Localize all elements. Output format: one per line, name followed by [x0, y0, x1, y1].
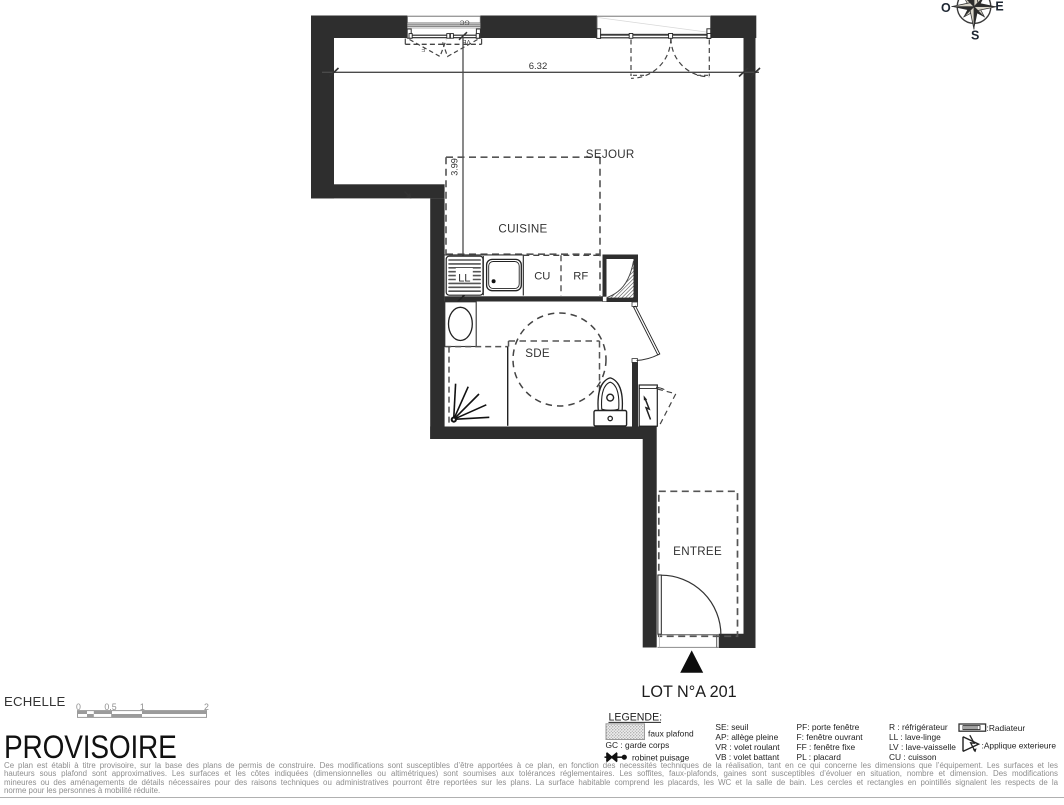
- svg-text:LL: LL: [458, 272, 470, 284]
- svg-text:AP: allège pleine: AP: allège pleine: [715, 732, 778, 742]
- svg-text:SEJOUR: SEJOUR: [586, 148, 635, 161]
- svg-text:ECHELLE: ECHELLE: [4, 694, 66, 709]
- svg-text:FF : fenêtre fixe: FF : fenêtre fixe: [797, 742, 856, 752]
- svg-text::Applique exterieure: :Applique exterieure: [982, 741, 1057, 751]
- svg-text:R : réfrigérateur: R : réfrigérateur: [889, 722, 948, 732]
- svg-text:S: S: [971, 29, 979, 43]
- svg-text:LL : lave-linge: LL : lave-linge: [889, 732, 941, 742]
- svg-text:PF: porte fenêtre: PF: porte fenêtre: [797, 722, 860, 732]
- svg-text:LEGENDE:: LEGENDE:: [609, 712, 663, 724]
- svg-text:CU: CU: [534, 271, 550, 283]
- svg-text:E: E: [995, 0, 1003, 14]
- svg-text:RF: RF: [573, 271, 588, 283]
- svg-text:GC : garde corps: GC : garde corps: [606, 740, 670, 750]
- svg-text:CUISINE: CUISINE: [498, 222, 547, 235]
- svg-text:3.99: 3.99: [449, 158, 459, 176]
- svg-text:LV : lave-vaisselle: LV : lave-vaisselle: [889, 742, 956, 752]
- svg-text::Radiateur: :Radiateur: [987, 723, 1026, 733]
- svg-text:SE: seuil: SE: seuil: [715, 722, 748, 732]
- svg-text:F: fenêtre ouvrant: F: fenêtre ouvrant: [797, 732, 864, 742]
- svg-text:F: F: [421, 46, 425, 52]
- svg-text:ENTREE: ENTREE: [673, 545, 722, 558]
- svg-text:faux plafond: faux plafond: [648, 729, 694, 739]
- svg-text:O: O: [941, 1, 951, 15]
- svg-text:VR : volet roulant: VR : volet roulant: [715, 742, 780, 752]
- svg-text:LOT N°A 201: LOT N°A 201: [641, 683, 736, 701]
- svg-text:SDE: SDE: [525, 347, 550, 360]
- svg-text:6.32: 6.32: [529, 61, 548, 72]
- svg-text:GC: GC: [460, 19, 470, 26]
